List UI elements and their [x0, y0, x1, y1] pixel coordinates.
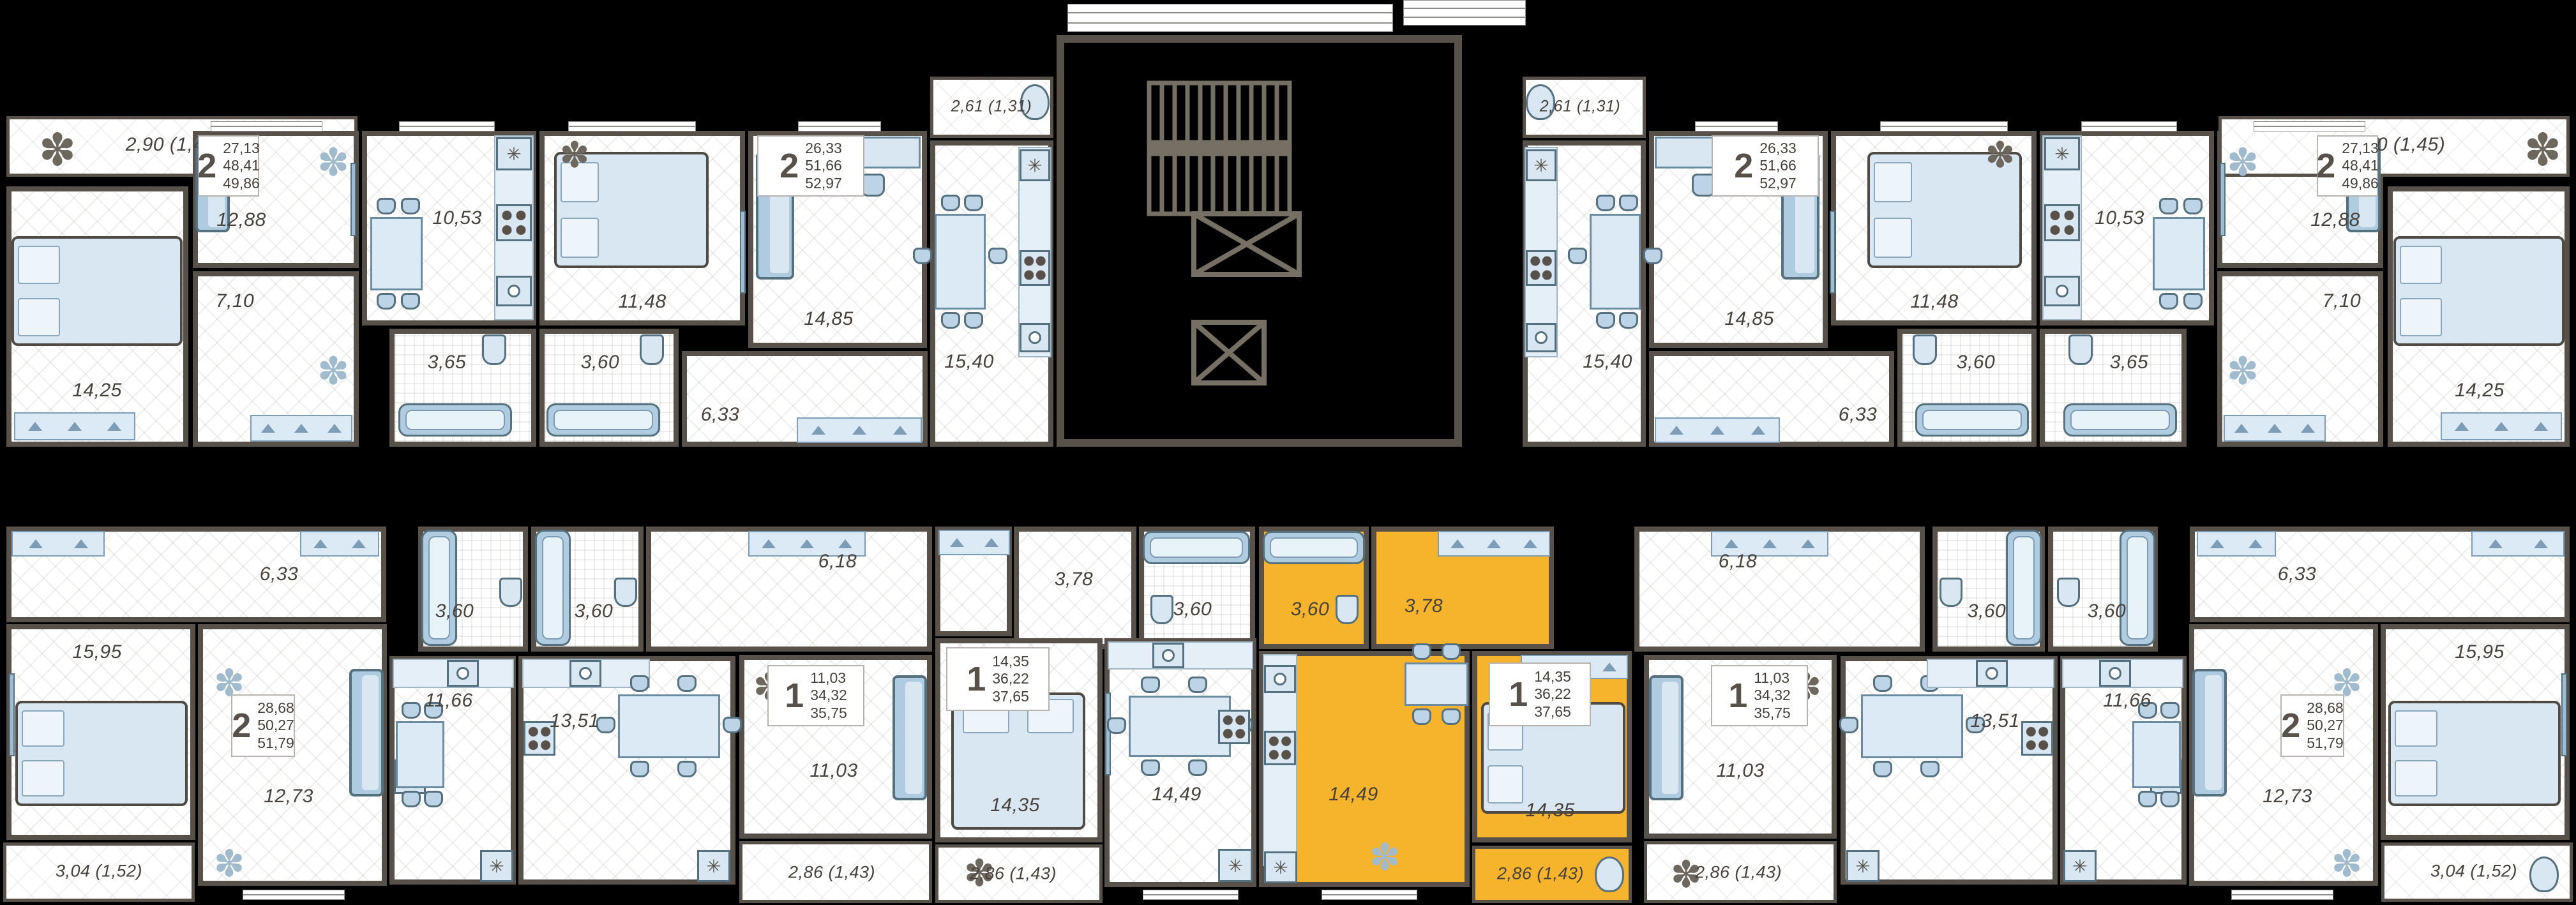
hanger-icon	[950, 538, 964, 547]
room-b1-balcony: 3,04 (1,52)	[3, 842, 195, 902]
chair-icon	[2183, 198, 2203, 214]
area-label: 11,03	[1716, 760, 1764, 782]
apartment-badge-t1[interactable]: 227,1348,4149,86	[198, 135, 259, 197]
hanger-icon	[328, 424, 342, 433]
chair-icon	[1141, 677, 1160, 693]
chair-icon	[1188, 677, 1207, 693]
hanger-icon	[352, 539, 366, 548]
sink-icon	[1526, 323, 1556, 352]
apartment-badge-t2[interactable]: 226,3351,6652,97	[757, 135, 864, 197]
area-value: 11,03	[1754, 669, 1791, 687]
sink-icon	[2099, 660, 2131, 687]
table6-icon	[1590, 214, 1641, 310]
hanger-icon	[800, 539, 814, 548]
area-value: 34,32	[1754, 687, 1791, 705]
area-label: 10,53	[2095, 207, 2144, 229]
wc-icon	[499, 578, 522, 607]
fridge-icon: ✳	[1264, 851, 1297, 883]
wc-icon	[614, 578, 637, 607]
area-label: 13,51	[550, 710, 599, 732]
plant-icon: ✽	[1366, 839, 1403, 876]
area-label: 3,60	[1968, 601, 2006, 622]
sink-icon	[2044, 276, 2080, 306]
hanger-icon	[68, 422, 82, 431]
area-value: 49,86	[223, 175, 260, 193]
chair-icon	[1568, 248, 1587, 264]
wc-icon	[1336, 595, 1359, 624]
area-value: 51,66	[805, 157, 842, 175]
hanger-icon	[313, 539, 328, 548]
shelf-icon	[11, 531, 105, 557]
fridge-icon: ✳	[2063, 850, 2097, 882]
hanger-icon	[74, 539, 88, 548]
area-value: 34,32	[810, 687, 847, 705]
win-icon	[2231, 890, 2333, 900]
plant-icon: ✽	[314, 352, 352, 391]
area-label: 15,95	[2455, 641, 2504, 663]
hanger-icon	[1602, 662, 1616, 671]
shelf-icon	[1438, 531, 1550, 557]
fridge-icon: ✳	[1846, 850, 1879, 882]
chair-icon	[1619, 312, 1638, 329]
fridge-icon: ✳	[1020, 149, 1050, 181]
sofa-icon	[893, 675, 927, 800]
area-label: 2,86 (1,43)	[1497, 864, 1584, 884]
sofa-icon	[349, 669, 384, 797]
tub-icon	[1263, 531, 1365, 564]
chair-icon	[964, 195, 983, 211]
wc-icon	[2057, 578, 2080, 607]
chair-icon	[941, 195, 960, 211]
area-value: 35,75	[810, 705, 847, 722]
table6-icon	[1129, 696, 1231, 757]
sink-icon	[1976, 660, 2008, 687]
chair-icon	[913, 248, 932, 264]
chair-icon	[1107, 717, 1126, 734]
sink-icon	[1152, 643, 1184, 668]
apartment-badge-t3[interactable]: 226,3351,6652,97	[1712, 135, 1819, 197]
area-value: 49,86	[2342, 175, 2379, 193]
chair-icon	[1873, 675, 1892, 692]
chair-icon	[1412, 643, 1431, 660]
win-icon	[1695, 121, 1778, 131]
hanger-icon	[2455, 422, 2469, 431]
area-label: 14,85	[804, 308, 854, 330]
area-label: 14,35	[1525, 800, 1575, 821]
fridge-icon: ✳	[1526, 149, 1556, 181]
fridge-icon: ✳	[697, 850, 730, 882]
area-label: 3,04 (1,52)	[2430, 862, 2517, 881]
hanger-icon	[2268, 424, 2282, 433]
apartment-badge-b3[interactable]: 114,3536,2237,65	[1489, 662, 1591, 726]
chair-icon	[941, 312, 960, 329]
area-label: 3,60	[1173, 599, 1212, 620]
apartment-badge-b2[interactable]: 111,0334,3235,75	[767, 665, 864, 726]
table4-icon	[396, 721, 444, 788]
tub-icon	[1143, 531, 1250, 564]
stove-icon	[1526, 250, 1556, 286]
fridge-icon: ✳	[496, 137, 532, 170]
chair-icon	[677, 675, 697, 692]
chair-icon	[1442, 708, 1461, 725]
shelf-icon	[300, 531, 379, 557]
hanger-icon	[2489, 539, 2503, 548]
hanger-icon	[261, 424, 275, 433]
chair-icon	[2183, 293, 2203, 310]
shelf-icon	[938, 530, 1010, 555]
room-b2-balcony: 2,86 (1,43)	[739, 841, 932, 903]
sink-icon	[569, 660, 601, 687]
chair-icon	[1873, 761, 1892, 777]
chair-icon	[630, 761, 649, 777]
chair-icon	[1442, 643, 1461, 660]
sink-icon	[1264, 665, 1296, 693]
hanger-icon	[1450, 539, 1465, 548]
area-label: 14,35	[990, 795, 1040, 816]
area-value: 51,79	[257, 735, 294, 752]
hanger-icon	[1751, 426, 1765, 435]
chair-icon	[1596, 195, 1615, 211]
room-count: 2	[1734, 149, 1753, 183]
plant-icon: ✽	[211, 846, 248, 883]
stove-icon	[1218, 710, 1250, 744]
tv-icon	[1830, 211, 1835, 294]
chair-icon	[988, 248, 1007, 264]
room-b2x-corridor: 3,78	[1014, 527, 1136, 649]
hanger-icon	[2301, 424, 2315, 433]
area-label: 3,60	[1957, 352, 1995, 373]
table4-icon	[2153, 217, 2205, 290]
hanger-icon	[1487, 539, 1501, 548]
room-count: 1	[1509, 677, 1528, 712]
hanger-icon	[2534, 422, 2548, 431]
fridge-icon: ✳	[1218, 849, 1253, 882]
area-label: 11,66	[2103, 690, 2151, 712]
apartment-badge-b5[interactable]: 228,6850,2751,79	[2280, 694, 2344, 757]
stove-icon	[1264, 731, 1296, 765]
tub-icon	[546, 403, 660, 437]
area-label: 2,86 (1,43)	[788, 863, 875, 883]
chair-icon	[1619, 195, 1638, 211]
plant2-icon: ✽	[2520, 128, 2565, 172]
parapet-icon	[1067, 4, 1393, 32]
area-label: 15,95	[72, 641, 122, 663]
room-count: 2	[2281, 708, 2300, 743]
chair-icon	[1643, 248, 1662, 264]
area-label: 11,48	[618, 291, 666, 313]
wc-icon	[640, 334, 664, 365]
area-value: 52,97	[1759, 175, 1796, 193]
chair-icon	[2160, 702, 2180, 719]
area-value: 27,13	[223, 140, 260, 158]
area-label: 6,33	[2278, 564, 2316, 585]
hanger-icon	[1724, 539, 1738, 548]
area-value: 52,97	[805, 175, 842, 193]
win-icon	[2081, 121, 2177, 131]
plant2-icon: ✽	[557, 137, 592, 173]
chair-icon	[2160, 791, 2180, 807]
room-count: 2	[232, 708, 251, 743]
shelf-icon	[14, 412, 135, 440]
area-label: 3,60	[575, 601, 613, 622]
apartment-badge-b2x[interactable]: 114,3536,2237,65	[946, 647, 1050, 711]
area-value: 35,75	[1754, 705, 1791, 722]
shelf-icon	[2224, 415, 2326, 442]
area-label: 12,73	[264, 786, 313, 807]
chair-icon	[424, 791, 443, 807]
armchair-icon	[2529, 856, 2559, 892]
hanger-icon	[852, 426, 866, 435]
stove-icon	[1020, 250, 1050, 286]
area-label: 14,25	[72, 380, 122, 401]
area-label: 12,88	[2310, 209, 2360, 231]
hanger-icon	[2494, 422, 2508, 431]
tub-icon	[1915, 403, 2029, 437]
wc-icon	[2068, 334, 2093, 365]
wc-icon	[1150, 595, 1173, 624]
chair-icon	[1412, 708, 1431, 725]
room-count: 1	[785, 678, 804, 713]
win-icon	[1322, 890, 1417, 900]
area-label: 3,04 (1,52)	[56, 862, 142, 881]
area-value: 36,22	[992, 670, 1029, 688]
chair-icon	[1141, 759, 1160, 776]
area-label: 14,25	[2455, 380, 2504, 401]
win-icon	[243, 890, 345, 900]
area-label: 7,10	[2323, 290, 2361, 312]
chair-icon	[1188, 759, 1207, 776]
hanger-icon	[2534, 539, 2548, 548]
shelf-icon	[2197, 531, 2276, 557]
area-label: 3,65	[428, 352, 466, 373]
area-label: 15,40	[944, 351, 994, 373]
area-label: 3,60	[435, 601, 474, 622]
area-label: 14,85	[1724, 308, 1774, 330]
chair-icon	[723, 717, 742, 733]
area-value: 26,33	[1759, 140, 1796, 158]
chair-icon	[402, 791, 421, 807]
armchair-icon	[1595, 856, 1624, 892]
chair-icon	[1596, 312, 1615, 329]
area-label: 14,49	[1152, 784, 1201, 805]
plant-icon: ✽	[314, 144, 352, 182]
tub-icon	[2006, 530, 2042, 646]
chair-icon	[2159, 198, 2178, 214]
area-label: 2,61 (1,31)	[951, 98, 1032, 116]
area-value: 27,13	[2342, 140, 2379, 158]
hanger-icon	[2248, 539, 2263, 548]
plant-icon: ✽	[2224, 352, 2262, 391]
room-count: 2	[197, 149, 216, 183]
shelf-icon	[2441, 412, 2562, 440]
stove-icon	[496, 204, 532, 241]
table6-icon	[935, 214, 986, 310]
chair-icon	[377, 198, 396, 214]
win-icon	[1880, 121, 2008, 131]
plant-icon: ✽	[2328, 846, 2365, 883]
table6-icon	[1861, 694, 1963, 758]
sink-icon	[447, 660, 479, 687]
tv-icon	[9, 673, 15, 756]
area-label: 11,66	[425, 690, 472, 712]
win-icon	[211, 121, 322, 131]
chair-icon	[1920, 761, 1940, 777]
plant2-icon: ✽	[35, 128, 80, 172]
tub-icon	[535, 530, 571, 646]
sofa-icon	[1649, 675, 1683, 800]
tub-icon	[421, 530, 457, 646]
area-label: 3,60	[1291, 599, 1329, 620]
area-label: 2,86 (1,43)	[970, 864, 1057, 884]
room-count: 2	[780, 149, 799, 183]
area-label: 10,53	[432, 207, 482, 229]
area-label: 12,73	[2263, 786, 2312, 807]
area-label: 6,33	[701, 404, 739, 426]
stove-icon	[2044, 204, 2080, 241]
area-value: 37,65	[992, 688, 1029, 706]
area-value: 37,65	[1534, 703, 1571, 721]
win-icon	[399, 121, 495, 131]
table4-icon	[1405, 662, 1468, 706]
wc-icon	[1913, 334, 1937, 365]
tv-icon	[740, 211, 746, 294]
stair-elevator-core	[1057, 35, 1462, 447]
hanger-icon	[811, 426, 825, 435]
hanger-icon	[1801, 539, 1815, 548]
hanger-icon	[29, 539, 43, 548]
tv-icon	[2561, 673, 2567, 756]
chair-icon	[401, 293, 420, 310]
area-label: 2,61 (1,31)	[1540, 98, 1620, 116]
area-label: 15,40	[1583, 351, 1632, 373]
hanger-icon	[1763, 539, 1777, 548]
area-value: 28,68	[257, 699, 294, 717]
area-label: 12,88	[216, 209, 266, 231]
chair-icon	[377, 293, 396, 310]
hanger-icon	[984, 538, 998, 547]
apartment-badge-t4[interactable]: 227,1348,4149,86	[2317, 135, 2378, 197]
sink-icon	[496, 276, 532, 306]
win-icon	[798, 121, 881, 131]
table6-icon	[618, 694, 720, 758]
shelf-icon	[2471, 531, 2565, 557]
sofa-icon	[2192, 669, 2227, 797]
hanger-icon	[1710, 426, 1724, 435]
tub-icon	[398, 403, 512, 437]
area-label: 3,60	[2088, 601, 2126, 622]
area-label: 3,78	[1055, 569, 1093, 590]
hanger-icon	[2234, 424, 2248, 433]
parapet-icon	[1403, 0, 1526, 26]
shelf-icon	[797, 417, 922, 443]
area-value: 26,33	[805, 140, 842, 158]
bed-icon	[11, 236, 183, 346]
chair-icon	[1839, 717, 1858, 733]
area-label: 3,78	[1405, 595, 1443, 617]
room-count: 1	[1728, 678, 1747, 713]
win-icon	[1143, 890, 1239, 900]
area-label: 2,86 (1,43)	[1695, 863, 1782, 883]
area-value: 14,35	[992, 653, 1029, 671]
bed-icon	[2393, 236, 2565, 346]
area-label: 7,10	[216, 290, 254, 312]
area-label: 3,60	[581, 352, 619, 373]
apartment-badge-b4[interactable]: 111,0334,3235,75	[1711, 665, 1808, 726]
stove-icon	[2021, 721, 2053, 756]
fridge-icon: ✳	[480, 850, 513, 882]
area-label: 14,49	[1329, 784, 1378, 805]
hanger-icon	[762, 539, 776, 548]
tub-icon	[2120, 530, 2155, 646]
area-value: 36,22	[1534, 685, 1571, 703]
area-value: 48,41	[223, 157, 260, 175]
room-count: 1	[967, 662, 986, 696]
area-label: 6,33	[1839, 404, 1877, 426]
area-value: 50,27	[257, 717, 294, 735]
area-label: 6,18	[818, 551, 857, 572]
area-value: 14,35	[1534, 668, 1571, 686]
hanger-icon	[28, 422, 42, 431]
bed-icon	[15, 701, 188, 806]
win-icon	[2254, 121, 2365, 131]
hanger-icon	[1523, 539, 1537, 548]
room-count: 2	[2316, 149, 2335, 183]
plant2-icon: ✽	[1982, 137, 2018, 173]
area-label: 11,03	[810, 760, 857, 782]
hanger-icon	[838, 539, 852, 548]
chair-icon	[677, 761, 697, 777]
area-value: 28,68	[2307, 699, 2344, 717]
sink-icon	[1020, 323, 1050, 352]
wc-icon	[482, 334, 506, 365]
hanger-icon	[294, 424, 308, 433]
area-label: 11,48	[1910, 291, 1958, 313]
area-label: 3,65	[2110, 352, 2148, 373]
plant-icon: ✽	[2224, 144, 2262, 182]
table4-icon	[2132, 721, 2181, 788]
shelf-icon	[1655, 417, 1780, 443]
hanger-icon	[107, 422, 121, 431]
area-label: 6,18	[1719, 551, 1757, 572]
chair-icon	[630, 675, 649, 692]
bed-icon	[2388, 701, 2561, 806]
area-value: 48,41	[2342, 157, 2379, 175]
area-value: 11,03	[810, 669, 847, 687]
hanger-icon	[2210, 539, 2224, 548]
chair-icon	[964, 312, 983, 329]
chair-icon	[2159, 293, 2178, 310]
chair-icon	[2138, 791, 2157, 807]
chair-icon	[401, 198, 420, 214]
floor-plan: 2,90 (1,45)14,2512,887,1010,533,653,6011…	[0, 0, 2576, 905]
tv-icon	[1105, 692, 1111, 775]
hanger-icon	[893, 426, 907, 435]
tub-icon	[2063, 403, 2177, 437]
shelf-icon	[250, 415, 352, 442]
area-label: 6,33	[260, 564, 298, 585]
area-value: 50,27	[2307, 717, 2344, 735]
fridge-icon: ✳	[2044, 137, 2080, 170]
wc-icon	[1940, 578, 1962, 607]
area-value: 51,66	[1759, 157, 1796, 175]
apartment-badge-b1[interactable]: 228,6850,2751,79	[231, 694, 295, 757]
win-icon	[568, 121, 696, 131]
chair-icon	[402, 702, 421, 719]
area-label: 13,51	[1970, 710, 2020, 732]
table4-icon	[370, 217, 423, 290]
hanger-icon	[1669, 426, 1683, 435]
area-value: 51,79	[2307, 735, 2344, 752]
